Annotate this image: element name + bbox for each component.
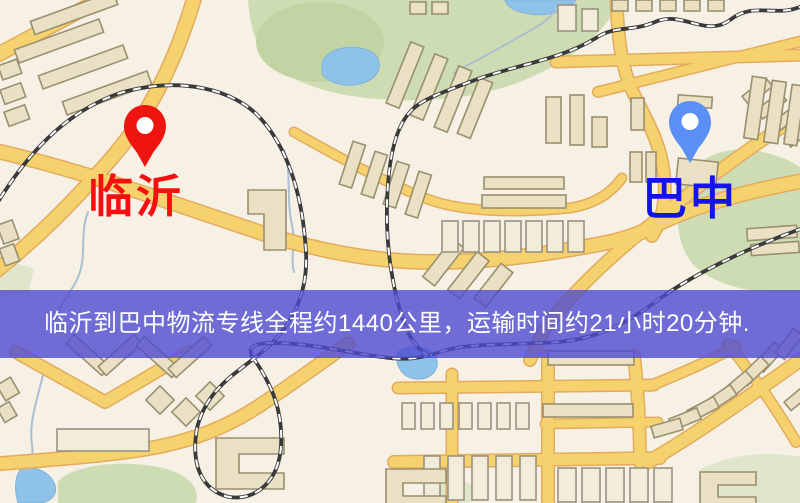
map-pin-icon — [122, 104, 168, 168]
pin-body — [124, 105, 166, 167]
pin-hole — [682, 113, 699, 130]
pin-body — [669, 101, 711, 163]
origin-city-label: 临沂 — [88, 174, 184, 219]
map-canvas[interactable] — [0, 0, 800, 503]
destination-marker-pin[interactable] — [667, 100, 713, 164]
route-info-text: 临沂到巴中物流专线全程约1440公里，运输时间约21小时20分钟. — [44, 310, 750, 337]
pin-hole — [137, 117, 154, 134]
map-pin-icon — [667, 100, 713, 164]
route-info-banner: 临沂到巴中物流专线全程约1440公里，运输时间约21小时20分钟. — [0, 290, 800, 358]
map-screenshot: 临沂 巴中 临沂到巴中物流专线全程约1440公里，运输时间约21小时20分钟. — [0, 0, 800, 503]
destination-city-label: 巴中 — [642, 176, 738, 221]
origin-marker-pin[interactable] — [122, 104, 168, 168]
